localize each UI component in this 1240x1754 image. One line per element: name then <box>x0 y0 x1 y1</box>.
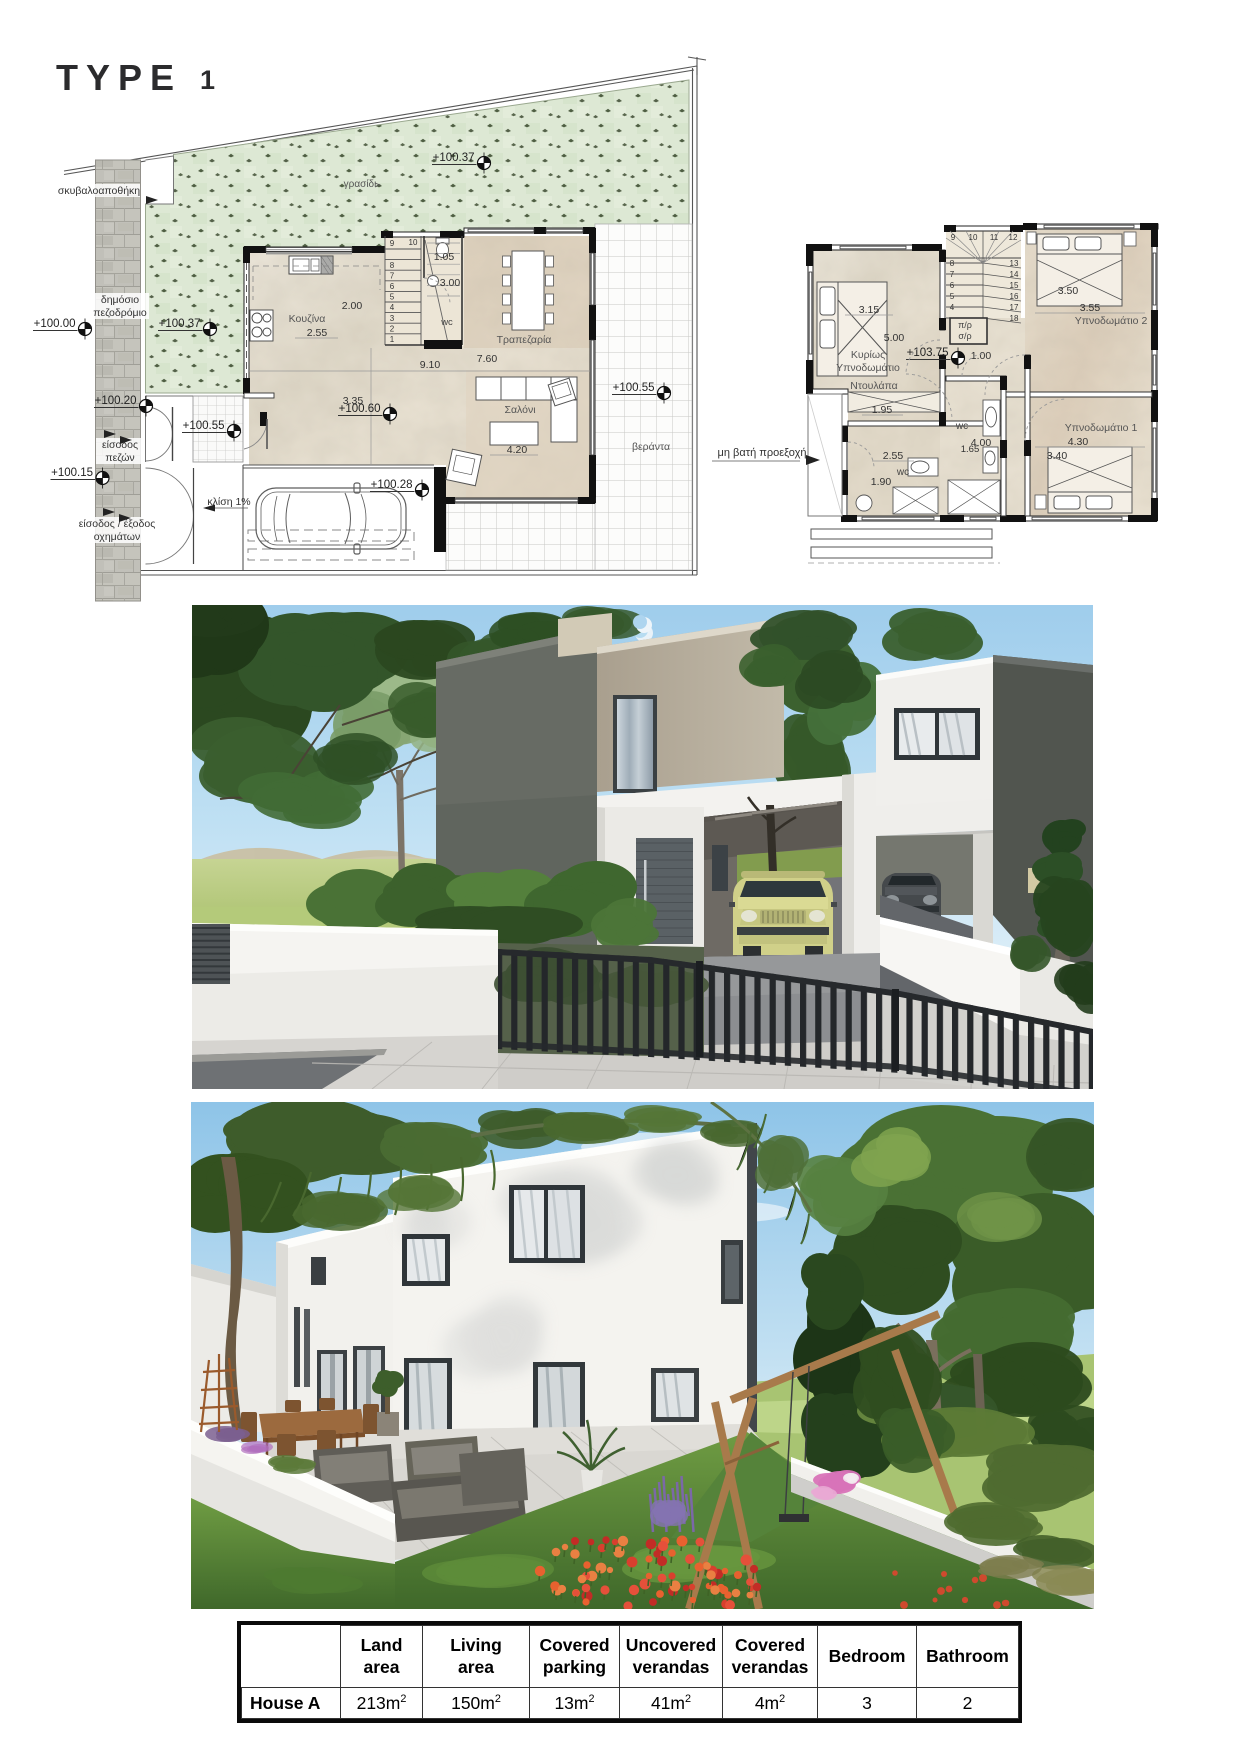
svg-text:+100.55: +100.55 <box>183 420 225 432</box>
svg-text:π/ρ: π/ρ <box>958 320 972 330</box>
svg-text:6: 6 <box>950 281 955 290</box>
svg-text:8: 8 <box>950 259 955 268</box>
svg-text:πεζών: πεζών <box>105 452 134 464</box>
svg-text:σ/ρ: σ/ρ <box>958 331 971 341</box>
svg-text:1.05: 1.05 <box>434 251 455 263</box>
svg-text:12: 12 <box>1009 233 1018 242</box>
svg-text:5.00: 5.00 <box>884 332 905 344</box>
svg-text:7.60: 7.60 <box>477 353 498 365</box>
svg-text:3.00: 3.00 <box>440 277 461 289</box>
svg-text:17: 17 <box>1010 303 1019 312</box>
svg-text:5: 5 <box>390 293 395 302</box>
svg-text:10: 10 <box>409 238 418 247</box>
svg-text:wc: wc <box>896 467 909 478</box>
svg-text:16: 16 <box>1010 292 1019 301</box>
svg-text:18: 18 <box>1010 314 1019 323</box>
svg-text:TYPE 1: TYPE 1 <box>56 57 223 98</box>
svg-text:+100.28: +100.28 <box>371 479 413 491</box>
svg-text:Τραπεζαρία: Τραπεζαρία <box>497 334 552 346</box>
svg-text:Υπνοδωμάτιο 2: Υπνοδωμάτιο 2 <box>1075 315 1148 327</box>
svg-text:13: 13 <box>1010 259 1019 268</box>
svg-text:8: 8 <box>390 261 395 270</box>
svg-text:Κουζίνα: Κουζίνα <box>289 313 326 325</box>
svg-text:γρασίδι: γρασίδι <box>344 178 377 190</box>
svg-text:Υπνοδωμάτιο: Υπνοδωμάτιο <box>836 362 900 374</box>
svg-text:Κυρίως: Κυρίως <box>851 349 885 361</box>
svg-text:μη βατή προεξοχή: μη βατή προεξοχή <box>718 447 807 459</box>
svg-text:δημόσιο: δημόσιο <box>101 294 139 306</box>
svg-text:11: 11 <box>990 233 999 242</box>
svg-text:6: 6 <box>390 282 395 291</box>
svg-text:10: 10 <box>969 233 978 242</box>
svg-text:+100.00: +100.00 <box>34 318 76 330</box>
svg-text:+100.20: +100.20 <box>95 395 137 407</box>
svg-text:Ντουλάπα: Ντουλάπα <box>850 380 898 392</box>
svg-text:9.10: 9.10 <box>420 359 441 371</box>
svg-text:wc: wc <box>955 421 968 432</box>
svg-text:σκυβαλοαποθήκη: σκυβαλοαποθήκη <box>58 185 140 197</box>
svg-text:9: 9 <box>390 239 395 248</box>
svg-text:1.95: 1.95 <box>872 404 893 416</box>
svg-text:4: 4 <box>950 303 955 312</box>
svg-text:4.20: 4.20 <box>507 444 528 456</box>
svg-text:Υπνοδωμάτιο 1: Υπνοδωμάτιο 1 <box>1065 422 1138 434</box>
svg-text:+100.37: +100.37 <box>433 152 475 164</box>
svg-text:Σαλόνι: Σαλόνι <box>504 404 536 416</box>
svg-text:3.40: 3.40 <box>1047 450 1068 462</box>
svg-text:9: 9 <box>951 233 956 242</box>
svg-text:βεράντα: βεράντα <box>632 441 670 453</box>
svg-text:+100.15: +100.15 <box>51 467 93 479</box>
svg-text:5: 5 <box>950 292 955 301</box>
svg-text:15: 15 <box>1010 281 1019 290</box>
svg-text:4.30: 4.30 <box>1068 436 1089 448</box>
svg-text:+100.60: +100.60 <box>339 403 381 415</box>
svg-text:3: 3 <box>390 314 395 323</box>
svg-text:2.00: 2.00 <box>342 300 363 312</box>
svg-text:+100.55: +100.55 <box>613 382 655 394</box>
svg-text:1: 1 <box>390 335 395 344</box>
svg-text:7: 7 <box>390 271 395 280</box>
svg-text:+100.37: +100.37 <box>159 318 201 330</box>
svg-text:οχημάτων: οχημάτων <box>94 531 140 543</box>
svg-text:πεζοδρόμιο: πεζοδρόμιο <box>93 307 147 319</box>
svg-text:7: 7 <box>950 270 955 279</box>
svg-text:2: 2 <box>390 324 395 333</box>
svg-text:1.90: 1.90 <box>871 476 892 488</box>
svg-text:3.50: 3.50 <box>1058 285 1079 297</box>
svg-text:3.15: 3.15 <box>859 304 880 316</box>
svg-text:wc: wc <box>440 317 453 328</box>
svg-text:2.55: 2.55 <box>883 450 904 462</box>
svg-text:1.65: 1.65 <box>961 444 980 455</box>
svg-text:4: 4 <box>390 303 395 312</box>
svg-text:2.55: 2.55 <box>307 327 328 339</box>
svg-text:14: 14 <box>1010 270 1019 279</box>
svg-text:είσοδος / έξοδος: είσοδος / έξοδος <box>79 518 156 530</box>
svg-text:3.55: 3.55 <box>1080 302 1101 314</box>
